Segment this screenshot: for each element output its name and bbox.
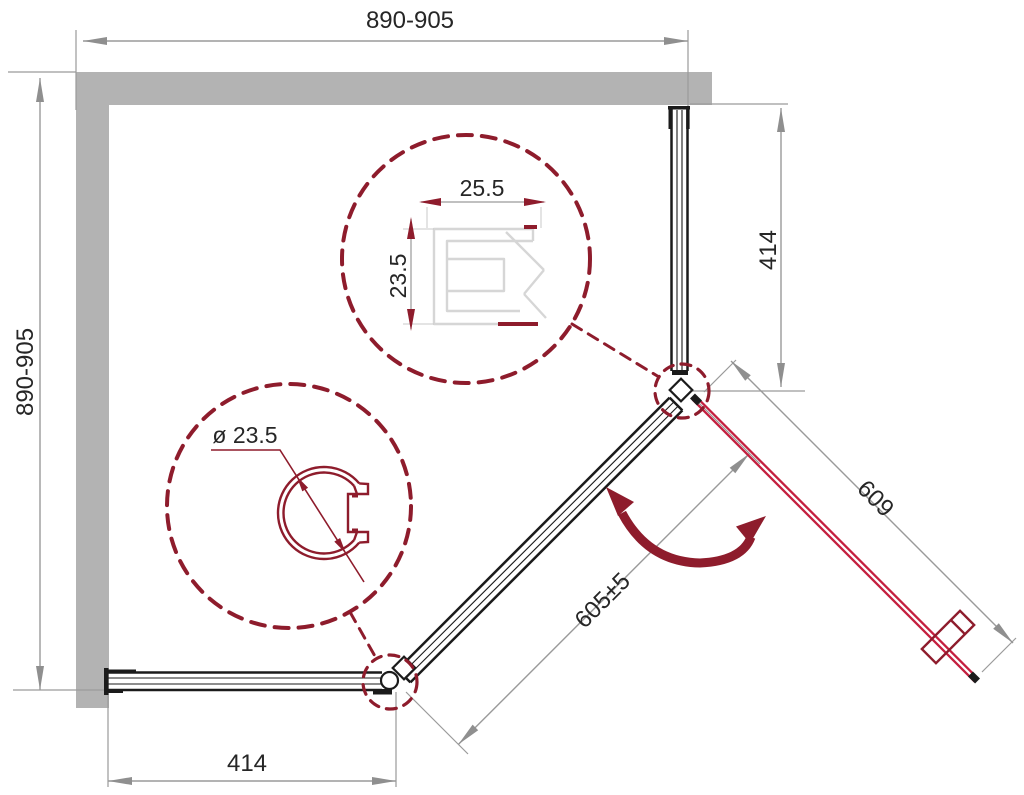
wall	[76, 72, 712, 708]
wall-left	[76, 72, 109, 708]
dim-label-right-segment: 414	[755, 230, 782, 270]
dim-label-bottom-segment: 414	[227, 750, 267, 777]
shower-enclosure-plan-drawing: 890-905 890-905 414 414 605±5	[0, 0, 1024, 795]
dimension-profile-width: 25.5	[419, 175, 546, 228]
dim-label-fixed-panel: 605±5	[570, 568, 636, 634]
wall-profile-section	[434, 229, 546, 324]
dimension-profile-depth: 23.5	[385, 217, 434, 331]
callout-joints	[350, 324, 709, 709]
dimension-door-width: 609	[704, 360, 1016, 672]
profile-glass-mark-top	[524, 225, 537, 229]
callout-leader-bottom	[350, 612, 376, 658]
dimension-fixed-panel: 605±5	[406, 402, 760, 754]
dim-label-door-width: 609	[852, 475, 899, 522]
technical-drawing-page: 890-905 890-905 414 414 605±5	[0, 0, 1024, 795]
pivot-hinge	[381, 672, 398, 689]
glass-panel-bottom	[104, 668, 382, 695]
dim-label-top-width: 890-905	[366, 7, 454, 34]
detail-circle-bottom	[167, 384, 411, 628]
detail-wall-profile: 25.5 23.5	[342, 135, 590, 383]
wall-top	[76, 72, 712, 105]
dimension-bottom-segment: 414	[108, 692, 396, 787]
corner-post-section	[278, 467, 368, 559]
glass-panel-right	[668, 106, 690, 371]
detail-corner-post: ø 23.5	[167, 384, 411, 628]
dimension-post-diameter: ø 23.5	[211, 422, 364, 582]
dim-label-profile-depth: 23.5	[385, 254, 411, 299]
corner-connector-top	[670, 370, 693, 401]
dim-label-left-width: 890-905	[12, 328, 39, 416]
dimension-right-segment: 414	[690, 104, 805, 391]
profile-glass-mark-bottom	[498, 322, 538, 326]
dim-label-post-diameter: ø 23.5	[212, 422, 277, 448]
callout-leader-top	[572, 324, 659, 377]
dim-label-profile-width: 25.5	[460, 175, 505, 201]
door-swing-arrow	[606, 487, 766, 563]
